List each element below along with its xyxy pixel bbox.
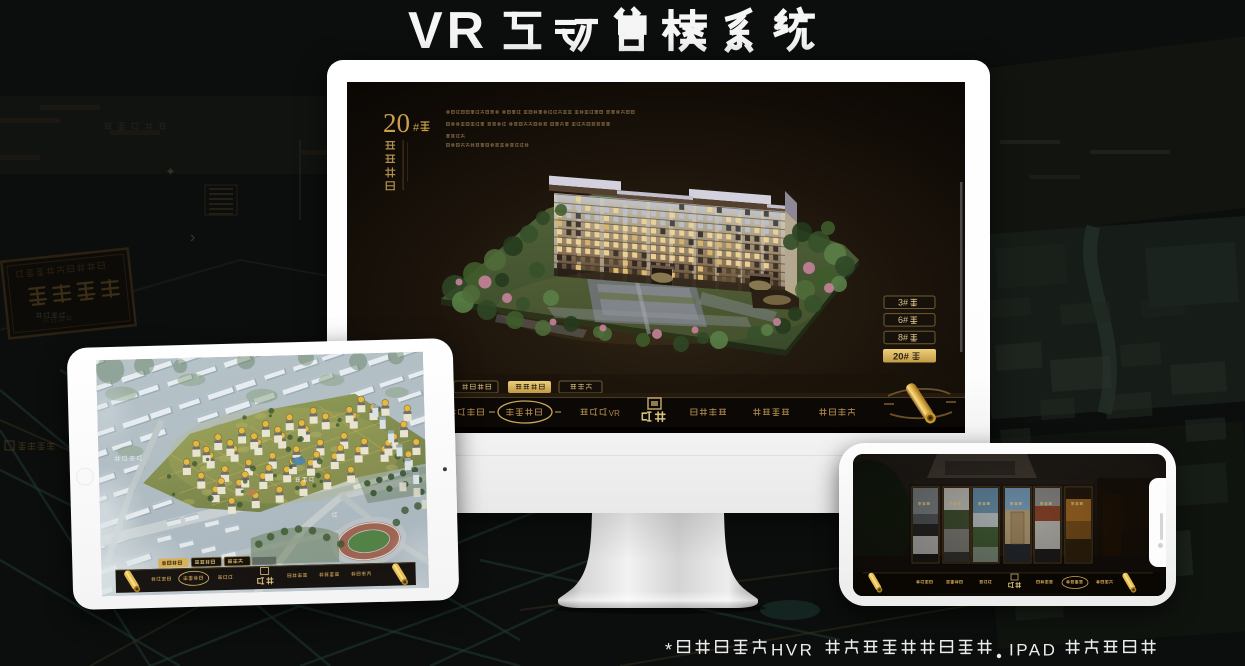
svg-text:*: *: [665, 640, 672, 660]
svg-text:›: ›: [190, 229, 195, 246]
svg-text:#: #: [413, 122, 420, 134]
svg-text:20#: 20#: [893, 352, 910, 363]
svg-text:IPAD: IPAD: [1009, 641, 1057, 660]
svg-text:✦: ✦: [165, 164, 176, 179]
svg-text:3#: 3#: [898, 298, 908, 308]
svg-text:VR: VR: [408, 2, 488, 60]
svg-text:6#: 6#: [898, 315, 908, 325]
svg-text:8#: 8#: [898, 333, 908, 343]
svg-text:HVR: HVR: [771, 641, 814, 660]
svg-text:20: 20: [383, 108, 410, 138]
svg-text:VR: VR: [609, 409, 620, 418]
